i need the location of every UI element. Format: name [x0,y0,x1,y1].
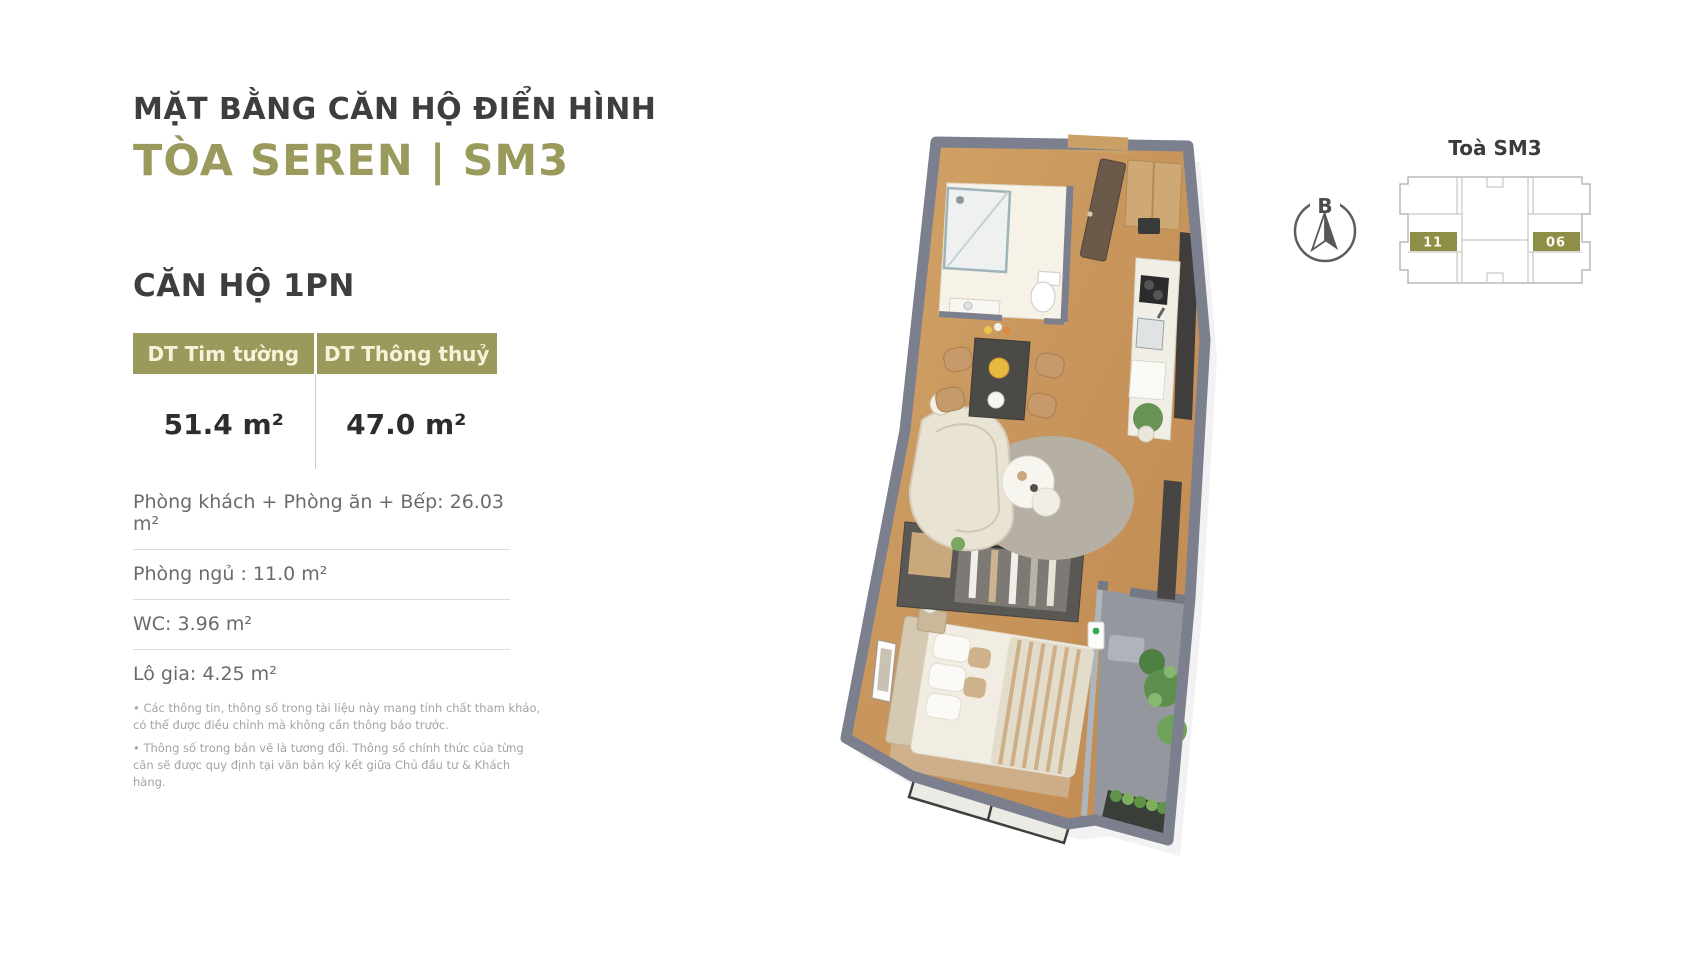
burner [1144,280,1154,290]
planter-plant [1134,796,1146,808]
entrance-gap [1068,141,1128,144]
flower [984,326,992,334]
plant-pot [1138,426,1154,442]
bathroom-wall [939,314,1002,318]
balcony-plant-leaf [1164,666,1176,678]
scene-graphics: B 11 06 [0,0,1705,959]
vanity-sink [964,302,972,310]
pillow [932,633,971,663]
unit-11-label: 11 [1423,236,1443,251]
cooktop [1139,275,1169,305]
water-heater [1088,622,1104,649]
fruit-bowl [989,358,1009,378]
planter-plant [1122,793,1134,805]
door-handle [1087,211,1092,216]
microwave [1138,218,1160,234]
floorplan [846,140,1217,856]
pillow [925,692,962,721]
flower [1003,327,1011,335]
unit-06-label: 06 [1546,236,1566,251]
compass: B [1295,192,1355,261]
planter-plant [1146,799,1158,811]
flower [994,323,1002,331]
keyplan: 11 06 [1400,177,1590,283]
small-plant [951,537,965,551]
side-table [1032,488,1060,516]
plate [988,392,1004,408]
keyplan-outline [1400,177,1590,283]
burner [1153,290,1163,300]
balcony-plant-leaf [1148,693,1162,707]
accent-pillow [967,646,992,669]
table-item [1017,471,1027,481]
planter-plant [1110,790,1122,802]
table-item [1030,484,1038,492]
accent-pillow [962,676,987,699]
heater-indicator [1093,628,1100,635]
kitchen-sink [1136,318,1164,350]
shower-head [956,196,964,204]
toilet-bowl [1031,282,1055,312]
balcony-wall-stub [1098,585,1108,586]
dishwasher [1129,360,1166,400]
bathroom [939,183,1070,322]
pillow [927,662,966,692]
